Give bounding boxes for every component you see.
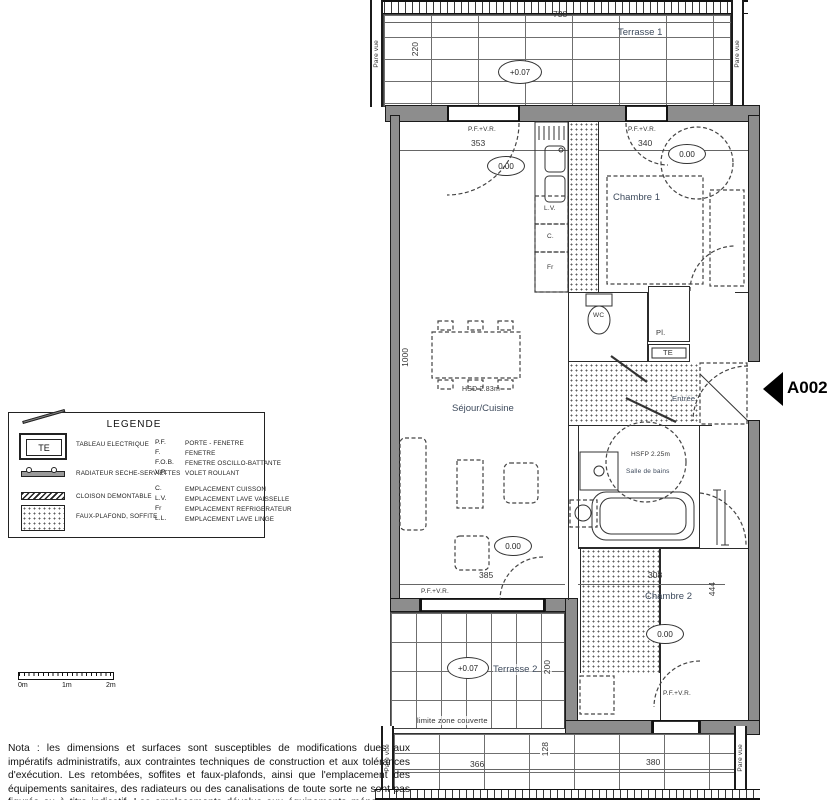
chair	[468, 380, 483, 389]
te-glyph: TE	[38, 443, 50, 453]
sink-bowl	[545, 146, 565, 172]
door-arc-sejour-window	[447, 123, 519, 195]
coffee-table	[457, 460, 483, 508]
legend-abbr-key: F.	[155, 449, 160, 456]
legend-label-fauxplafond: FAUX-PLAFOND, SOFFITE	[76, 513, 158, 520]
door-leaf-wc	[611, 356, 647, 382]
legend-abbr-key: F.O.B.	[155, 459, 174, 466]
radiator-icon	[713, 490, 729, 545]
chair	[468, 321, 483, 330]
entrance-arrow-icon	[763, 372, 783, 406]
chair	[438, 380, 453, 389]
te-symbol-inner: TE	[26, 439, 62, 456]
dining-table	[432, 332, 520, 378]
bathtub-inner	[600, 498, 686, 534]
scale-bar	[18, 672, 114, 680]
toilet-tank	[586, 294, 612, 306]
door-leaf-entree	[626, 398, 676, 422]
chair	[498, 380, 513, 389]
legend-label-te: TABLEAU ELECTRIQUE	[76, 441, 149, 448]
legend-abbr-key: C.	[155, 485, 162, 492]
fauxplafond-symbol-icon	[21, 505, 65, 531]
appliance-washer	[570, 500, 597, 527]
te-lid-icon	[22, 409, 65, 424]
scale-label-2: 2m	[106, 682, 116, 689]
door-arc-bath	[700, 493, 746, 545]
legend-abbr-key: L.L.	[155, 515, 166, 522]
turning-circle-chambre1	[661, 127, 733, 199]
radiator-knob-icon	[26, 467, 32, 473]
floor-plan-canvas: Pare vue Pare vue 738 220 Terrasse 1 +0.…	[0, 0, 837, 800]
nota-paragraph: Nota : les dimensions et surfaces sont s…	[8, 742, 410, 800]
armchair	[504, 463, 538, 503]
legend-box: LEGENDE TE TABLEAU ELECTRIQUE RADIATEUR …	[8, 412, 265, 538]
kitchen-counter	[535, 122, 568, 292]
legend-abbr-key: L.V.	[155, 495, 166, 502]
legend-label-cloison: CLOISON DEMONTABLE	[76, 493, 152, 500]
toilet-bowl	[588, 306, 610, 334]
appliance-dishwasher	[535, 196, 568, 224]
legend-abbr-val: EMPLACEMENT LAVE LINGE	[185, 516, 274, 523]
cooktop-icon	[539, 126, 564, 140]
door-arc-chambre2	[654, 661, 700, 707]
entrance-landing	[700, 363, 747, 424]
bed-chambre1	[607, 176, 703, 284]
legend-title: LEGENDE	[69, 419, 199, 430]
bathtub	[592, 492, 694, 540]
legend-abbr-key: P.F.	[155, 439, 166, 446]
shower-drain	[594, 466, 604, 476]
appliance-fridge	[535, 252, 568, 292]
scale-label-1: 1m	[62, 682, 72, 689]
cloison-symbol-icon	[21, 492, 65, 500]
legend-abbr-val: VOLET ROULANT	[185, 470, 239, 477]
legend-abbr-key: V.R.	[155, 469, 168, 476]
sink-faucet	[559, 148, 563, 152]
wardrobe-chambre1	[710, 190, 744, 286]
legend-abbr-val: PORTE - FENETRE	[185, 440, 244, 447]
chair	[498, 321, 513, 330]
legend-abbr-val: EMPLACEMENT REFRIGERATEUR	[185, 506, 292, 513]
sofa-left-wall	[400, 438, 426, 530]
legend-abbr-val: EMPLACEMENT LAVE VAISSELLE	[185, 496, 289, 503]
shower-basin	[580, 452, 618, 490]
chair	[438, 321, 453, 330]
armchair	[455, 536, 489, 570]
legend-abbr-val: EMPLACEMENT CUISSON	[185, 486, 266, 493]
plan-overlay	[0, 0, 837, 800]
door-arc-terrasse2	[500, 557, 543, 600]
desk-chambre2	[580, 676, 614, 714]
door-leaf-entrance	[700, 374, 748, 421]
legend-abbr-val: FENETRE	[185, 450, 215, 457]
appliance-cooktop-zone	[535, 224, 568, 252]
scale-label-0: 0m	[18, 682, 28, 689]
washer-drum	[575, 505, 591, 521]
sink-bowl	[545, 176, 565, 202]
radiator-knob-icon	[51, 467, 57, 473]
legend-abbr-val: FENETRE OSCILLO-BATTANTE	[185, 460, 281, 467]
legend-abbr-key: Fr	[155, 505, 161, 512]
te-symbol-icon: TE	[19, 433, 67, 460]
